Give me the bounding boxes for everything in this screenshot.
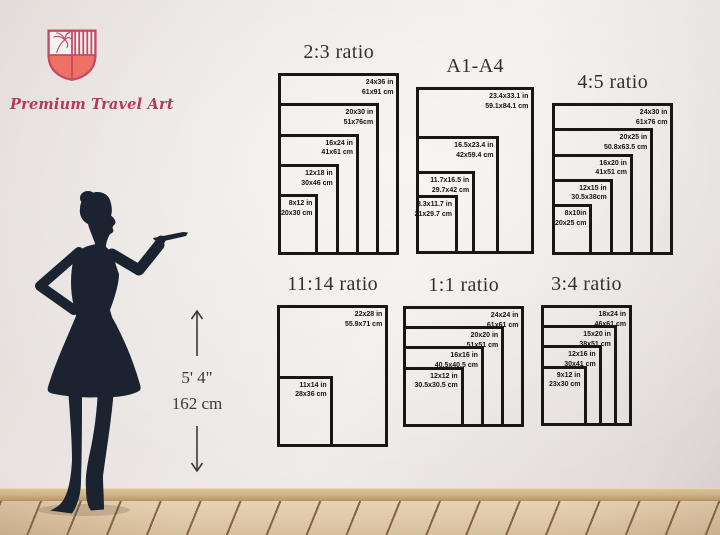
size-label: 20x30 in51x76cm [344, 108, 374, 127]
brand-name: Premium Travel Art [10, 96, 146, 113]
size-box: 8x12 in20x30 cm [278, 194, 318, 255]
size-chart-4-5: 4:5 ratio24x30 in61x76 cm20x25 in50.8x63… [552, 103, 673, 255]
size-label: 12x15 in30.5x38cm [571, 184, 606, 203]
size-box: 11x14 in28x36 cm [277, 376, 333, 447]
chart-title: 1:1 ratio [428, 274, 499, 297]
chart-title: 2:3 ratio [303, 41, 374, 64]
arrow-up-icon [189, 308, 205, 358]
size-label: 11.7x16.5 in29.7x42 cm [430, 176, 469, 195]
size-label: 24x36 in61x91 cm [362, 78, 394, 97]
size-label: 16x24 in41x61 cm [321, 139, 353, 158]
size-label: 11x14 in28x36 cm [295, 381, 327, 400]
size-chart-1-1: 1:1 ratio24x24 in61x61 cm20x20 in51x51 c… [403, 306, 524, 427]
size-label: 12x12 in30.5x30.5 cm [415, 372, 458, 391]
chart-title: 11:14 ratio [287, 273, 378, 296]
size-chart-3-4: 3:4 ratio18x24 in46x61 cm15x20 in38x51 c… [541, 305, 632, 426]
size-guide-poster: Premium Travel Art [0, 0, 720, 535]
size-label: 8x10in20x25 cm [555, 209, 587, 228]
size-label: 20x25 in50.8x63.5 cm [604, 133, 647, 152]
arrow-down-icon [189, 424, 205, 474]
size-label: 22x28 in55.9x71 cm [345, 310, 382, 329]
size-chart-11-14: 11:14 ratio22x28 in55.9x71 cm11x14 in28x… [277, 305, 388, 447]
size-label: 16.5x23.4 in42x59.4 cm [454, 141, 493, 160]
size-box: 8.3x11.7 in21x29.7 cm [416, 195, 458, 254]
size-chart-2-3: 2:3 ratio24x36 in61x91 cm20x30 in51x76cm… [278, 73, 399, 255]
chart-title: 4:5 ratio [577, 71, 648, 94]
size-box: 9x12 in23x30 cm [541, 366, 587, 427]
chart-title: A1-A4 [446, 55, 504, 78]
size-label: 16x20 in41x51 cm [595, 159, 627, 178]
size-label: 9x12 in23x30 cm [549, 371, 581, 390]
chart-title: 3:4 ratio [551, 273, 622, 296]
size-chart-a1-a4: A1-A423.4x33.1 in59.1x84.1 cm16.5x23.4 i… [416, 87, 534, 254]
size-label: 8.3x11.7 in21x29.7 cm [415, 200, 452, 219]
height-feet: 5' 4" [172, 365, 223, 391]
size-label: 12x18 in30x46 cm [301, 169, 333, 188]
size-box: 12x12 in30.5x30.5 cm [403, 367, 464, 428]
height-cm: 162 cm [172, 391, 223, 417]
height-marker: 5' 4" 162 cm [164, 308, 230, 474]
size-box: 8x10in20x25 cm [552, 204, 592, 255]
size-label: 24x30 in61x76 cm [636, 108, 668, 127]
brand-logo [45, 28, 99, 82]
size-label: 23.4x33.1 in59.1x84.1 cm [485, 92, 528, 111]
size-label: 8x12 in20x30 cm [281, 199, 313, 218]
shield-icon [45, 28, 99, 82]
